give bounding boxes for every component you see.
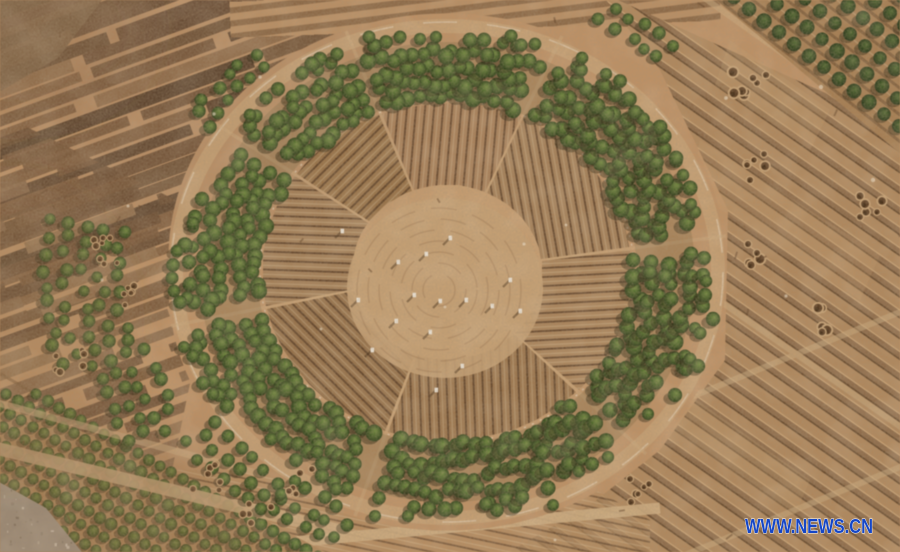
svg-text:WWW.NEWS.CN: WWW.NEWS.CN	[745, 515, 873, 538]
